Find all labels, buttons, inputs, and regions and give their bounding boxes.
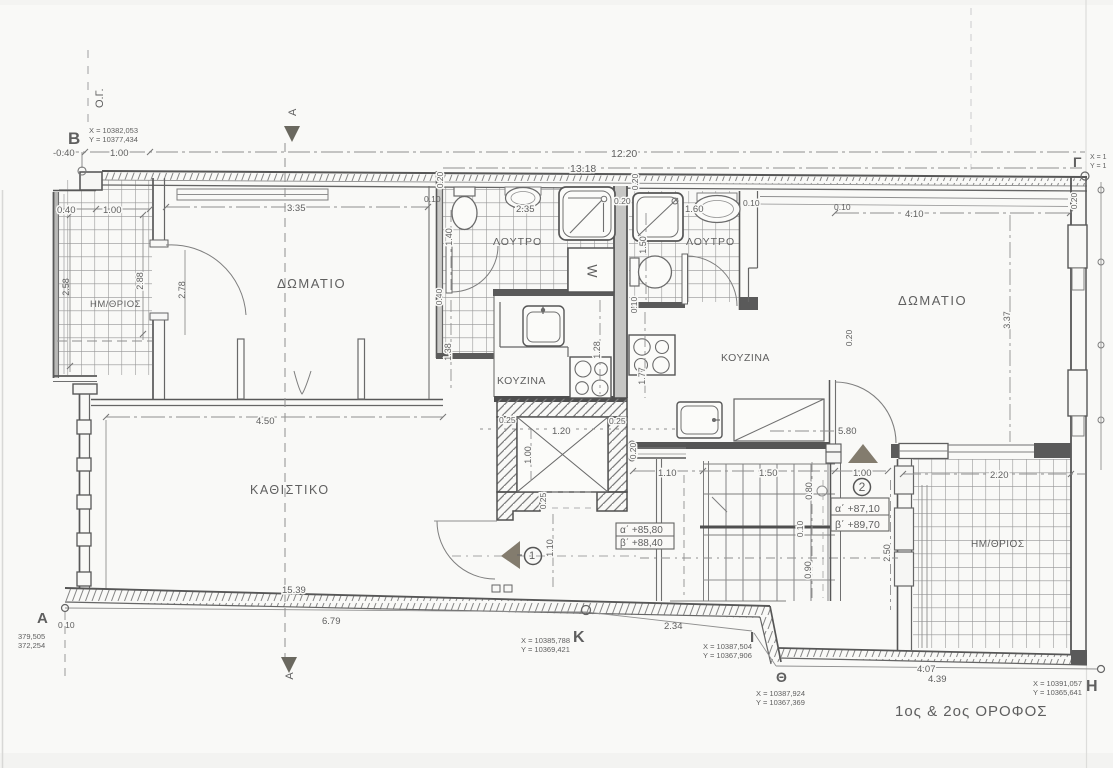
svg-text:5.80: 5.80 xyxy=(838,426,857,437)
svg-text:X = 10387,924: X = 10387,924 xyxy=(756,689,805,698)
svg-text:X = 10385,788: X = 10385,788 xyxy=(521,636,570,645)
svg-text:0.80: 0.80 xyxy=(804,482,814,500)
svg-text:0.90: 0.90 xyxy=(803,561,813,579)
svg-text:-0.40: -0.40 xyxy=(53,148,75,159)
svg-text:0.25: 0.25 xyxy=(538,492,548,509)
svg-text:2: 2 xyxy=(859,480,866,494)
svg-text:1.00: 1.00 xyxy=(523,446,533,464)
svg-text:2.58: 2.58 xyxy=(61,278,71,296)
svg-text:Y = 10365,641: Y = 10365,641 xyxy=(1033,688,1082,697)
svg-text:0.10: 0.10 xyxy=(795,520,805,537)
svg-text:0.20: 0.20 xyxy=(1069,192,1079,209)
svg-text:Θ: Θ xyxy=(776,669,787,685)
svg-text:Η: Η xyxy=(1086,678,1098,695)
svg-text:2.20: 2.20 xyxy=(990,470,1009,481)
svg-text:1.50: 1.50 xyxy=(638,236,648,254)
svg-text:Y = 1: Y = 1 xyxy=(1090,163,1107,170)
svg-text:1.28: 1.28 xyxy=(592,341,602,359)
svg-text:1.20: 1.20 xyxy=(552,426,571,437)
svg-text:Ο.Γ.: Ο.Γ. xyxy=(94,88,106,108)
svg-text:Y = 10377,434: Y = 10377,434 xyxy=(89,135,138,144)
svg-text:ΚΟΥΖΙΝΑ: ΚΟΥΖΙΝΑ xyxy=(721,352,770,364)
svg-text:A: A xyxy=(284,672,296,680)
svg-text:Κ: Κ xyxy=(573,629,585,646)
svg-text:ΛΟΥΤΡΟ: ΛΟΥΤΡΟ xyxy=(493,236,542,248)
svg-text:0.20: 0.20 xyxy=(844,329,854,346)
svg-text:1.60: 1.60 xyxy=(685,204,704,215)
svg-text:2.35: 2.35 xyxy=(516,204,535,215)
svg-text:0.20: 0.20 xyxy=(435,171,445,188)
svg-text:α΄ +87,10: α΄ +87,10 xyxy=(835,503,880,515)
svg-text:X = 10382,053: X = 10382,053 xyxy=(89,126,138,135)
svg-text:13.18: 13.18 xyxy=(570,163,596,175)
svg-text:β΄ +88,40: β΄ +88,40 xyxy=(620,537,663,549)
svg-text:ΗΜ/ΘΡΙΟΣ: ΗΜ/ΘΡΙΟΣ xyxy=(971,539,1025,550)
svg-text:A: A xyxy=(287,108,299,116)
svg-text:6.79: 6.79 xyxy=(322,616,341,627)
svg-text:ΚΑΘΙΣΤΙΚΟ: ΚΑΘΙΣΤΙΚΟ xyxy=(250,483,330,497)
svg-text:0.40: 0.40 xyxy=(57,205,76,216)
svg-text:ΚΟΥΖΙΝΑ: ΚΟΥΖΙΝΑ xyxy=(497,375,546,387)
svg-text:W: W xyxy=(584,264,600,278)
svg-text:3.35: 3.35 xyxy=(287,203,306,214)
svg-text:Y = 10367,906: Y = 10367,906 xyxy=(703,651,752,660)
svg-text:1.10: 1.10 xyxy=(658,468,677,479)
svg-text:ΗΜ/ΘΡΙΟΣ: ΗΜ/ΘΡΙΟΣ xyxy=(90,299,141,310)
svg-text:α΄ +85,80: α΄ +85,80 xyxy=(620,524,663,536)
svg-text:2.34: 2.34 xyxy=(664,621,683,632)
svg-text:1.77: 1.77 xyxy=(637,367,647,385)
svg-text:Y = 10369,421: Y = 10369,421 xyxy=(521,645,570,654)
svg-text:0.10: 0.10 xyxy=(743,198,760,208)
svg-text:0.10: 0.10 xyxy=(834,202,851,212)
svg-text:2.50: 2.50 xyxy=(882,544,892,562)
svg-text:Y = 10367,369: Y = 10367,369 xyxy=(756,698,805,707)
svg-text:372,254: 372,254 xyxy=(18,641,45,650)
svg-text:ΛΟΥΤΡΟ: ΛΟΥΤΡΟ xyxy=(686,236,735,248)
svg-text:Γ: Γ xyxy=(1073,154,1082,170)
svg-text:1: 1 xyxy=(529,550,535,562)
svg-text:ΔΩΜΑΤΙΟ: ΔΩΜΑΤΙΟ xyxy=(898,293,967,308)
svg-text:0.20: 0.20 xyxy=(630,173,640,190)
svg-text:1.40: 1.40 xyxy=(444,228,454,246)
svg-text:2.88: 2.88 xyxy=(135,272,145,290)
svg-text:4.50: 4.50 xyxy=(256,416,275,427)
svg-text:ΔΩΜΑΤΙΟ: ΔΩΜΑΤΙΟ xyxy=(277,276,346,291)
svg-text:0.10: 0.10 xyxy=(424,194,441,204)
svg-text:X = 10391,057: X = 10391,057 xyxy=(1033,679,1082,688)
svg-text:1ος & 2ος ΟΡΟΦΟΣ: 1ος & 2ος ΟΡΟΦΟΣ xyxy=(895,703,1048,720)
svg-text:379,505: 379,505 xyxy=(18,632,45,641)
svg-text:0.25: 0.25 xyxy=(499,415,516,425)
svg-text:1.00: 1.00 xyxy=(103,205,122,216)
svg-text:0.40: 0.40 xyxy=(434,288,444,305)
svg-text:Α: Α xyxy=(37,610,48,627)
svg-text:12.20: 12.20 xyxy=(611,148,637,160)
svg-text:0.20: 0.20 xyxy=(628,442,638,459)
svg-text:β΄ +89,70: β΄ +89,70 xyxy=(835,519,880,531)
svg-text:3.37: 3.37 xyxy=(1002,311,1012,329)
svg-text:1.00: 1.00 xyxy=(853,468,872,479)
svg-text:4.39: 4.39 xyxy=(928,674,947,685)
svg-text:0 10: 0 10 xyxy=(58,620,75,630)
svg-text:1.00: 1.00 xyxy=(110,148,129,159)
svg-text:1.38: 1.38 xyxy=(443,343,453,361)
svg-text:X = 1: X = 1 xyxy=(1090,154,1107,161)
svg-text:0.20: 0.20 xyxy=(614,196,631,206)
svg-text:2.78: 2.78 xyxy=(177,281,187,299)
svg-text:1.10: 1.10 xyxy=(545,539,555,557)
svg-text:4.10: 4.10 xyxy=(905,209,924,220)
svg-text:1.50: 1.50 xyxy=(759,468,778,479)
svg-text:15.39: 15.39 xyxy=(282,585,306,596)
svg-text:Β: Β xyxy=(68,129,80,148)
svg-text:0.25: 0.25 xyxy=(609,416,626,426)
svg-text:X = 10387,504: X = 10387,504 xyxy=(703,642,752,651)
svg-text:0.10: 0.10 xyxy=(629,296,639,313)
